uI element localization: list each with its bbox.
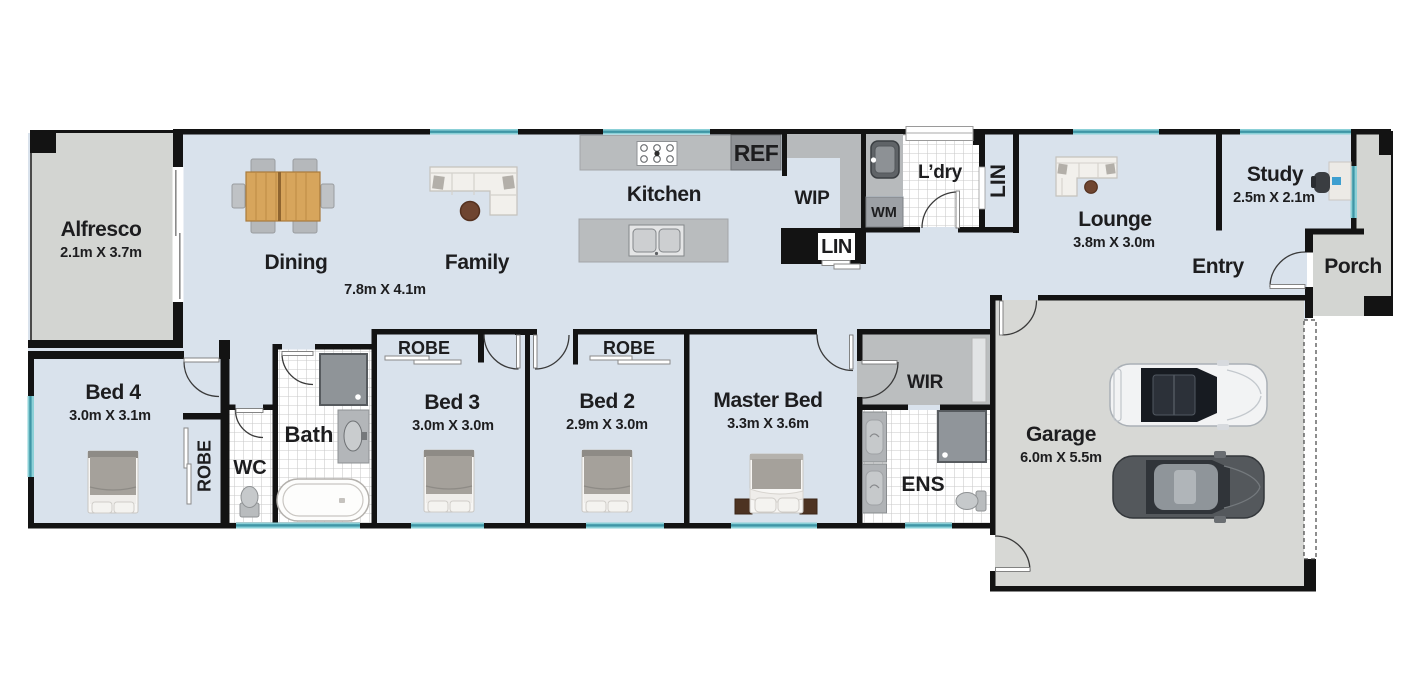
svg-text:7.8m X 4.1m: 7.8m X 4.1m [344,282,426,298]
svg-text:3.0m X 3.0m: 3.0m X 3.0m [412,418,494,434]
svg-text:WC: WC [233,457,266,479]
svg-text:Porch: Porch [1324,255,1382,278]
svg-text:ENS: ENS [901,473,944,496]
svg-text:Bed 3: Bed 3 [424,391,479,414]
svg-text:Master Bed: Master Bed [713,389,822,412]
svg-text:WIR: WIR [907,372,944,393]
svg-text:Family: Family [445,251,510,274]
svg-text:ROBE: ROBE [195,440,215,492]
svg-text:LIN: LIN [987,164,1010,198]
svg-text:Bed 2: Bed 2 [579,390,634,413]
svg-text:Kitchen: Kitchen [627,183,701,206]
svg-text:Dining: Dining [265,251,328,274]
svg-text:6.0m X 5.5m: 6.0m X 5.5m [1020,450,1102,466]
svg-text:2.5m X 2.1m: 2.5m X 2.1m [1233,190,1315,206]
svg-text:L’dry: L’dry [918,162,963,183]
svg-text:LIN: LIN [821,236,852,258]
svg-text:Bath: Bath [285,422,334,447]
svg-text:ROBE: ROBE [398,338,450,358]
svg-text:Entry: Entry [1192,255,1244,278]
svg-text:3.0m X 3.1m: 3.0m X 3.1m [69,408,151,424]
svg-text:WM: WM [871,205,897,221]
svg-text:Alfresco: Alfresco [61,218,142,241]
svg-text:2.9m X 3.0m: 2.9m X 3.0m [566,417,648,433]
svg-text:2.1m X 3.7m: 2.1m X 3.7m [60,245,142,261]
svg-text:WIP: WIP [795,188,831,209]
svg-text:Lounge: Lounge [1078,208,1151,231]
svg-text:Bed 4: Bed 4 [85,381,141,404]
svg-text:Study: Study [1247,163,1304,186]
svg-text:3.3m X 3.6m: 3.3m X 3.6m [727,416,809,432]
svg-text:ROBE: ROBE [603,338,655,358]
svg-text:Garage: Garage [1026,423,1096,446]
svg-text:3.8m X 3.0m: 3.8m X 3.0m [1073,235,1155,251]
svg-text:REF: REF [734,140,779,166]
